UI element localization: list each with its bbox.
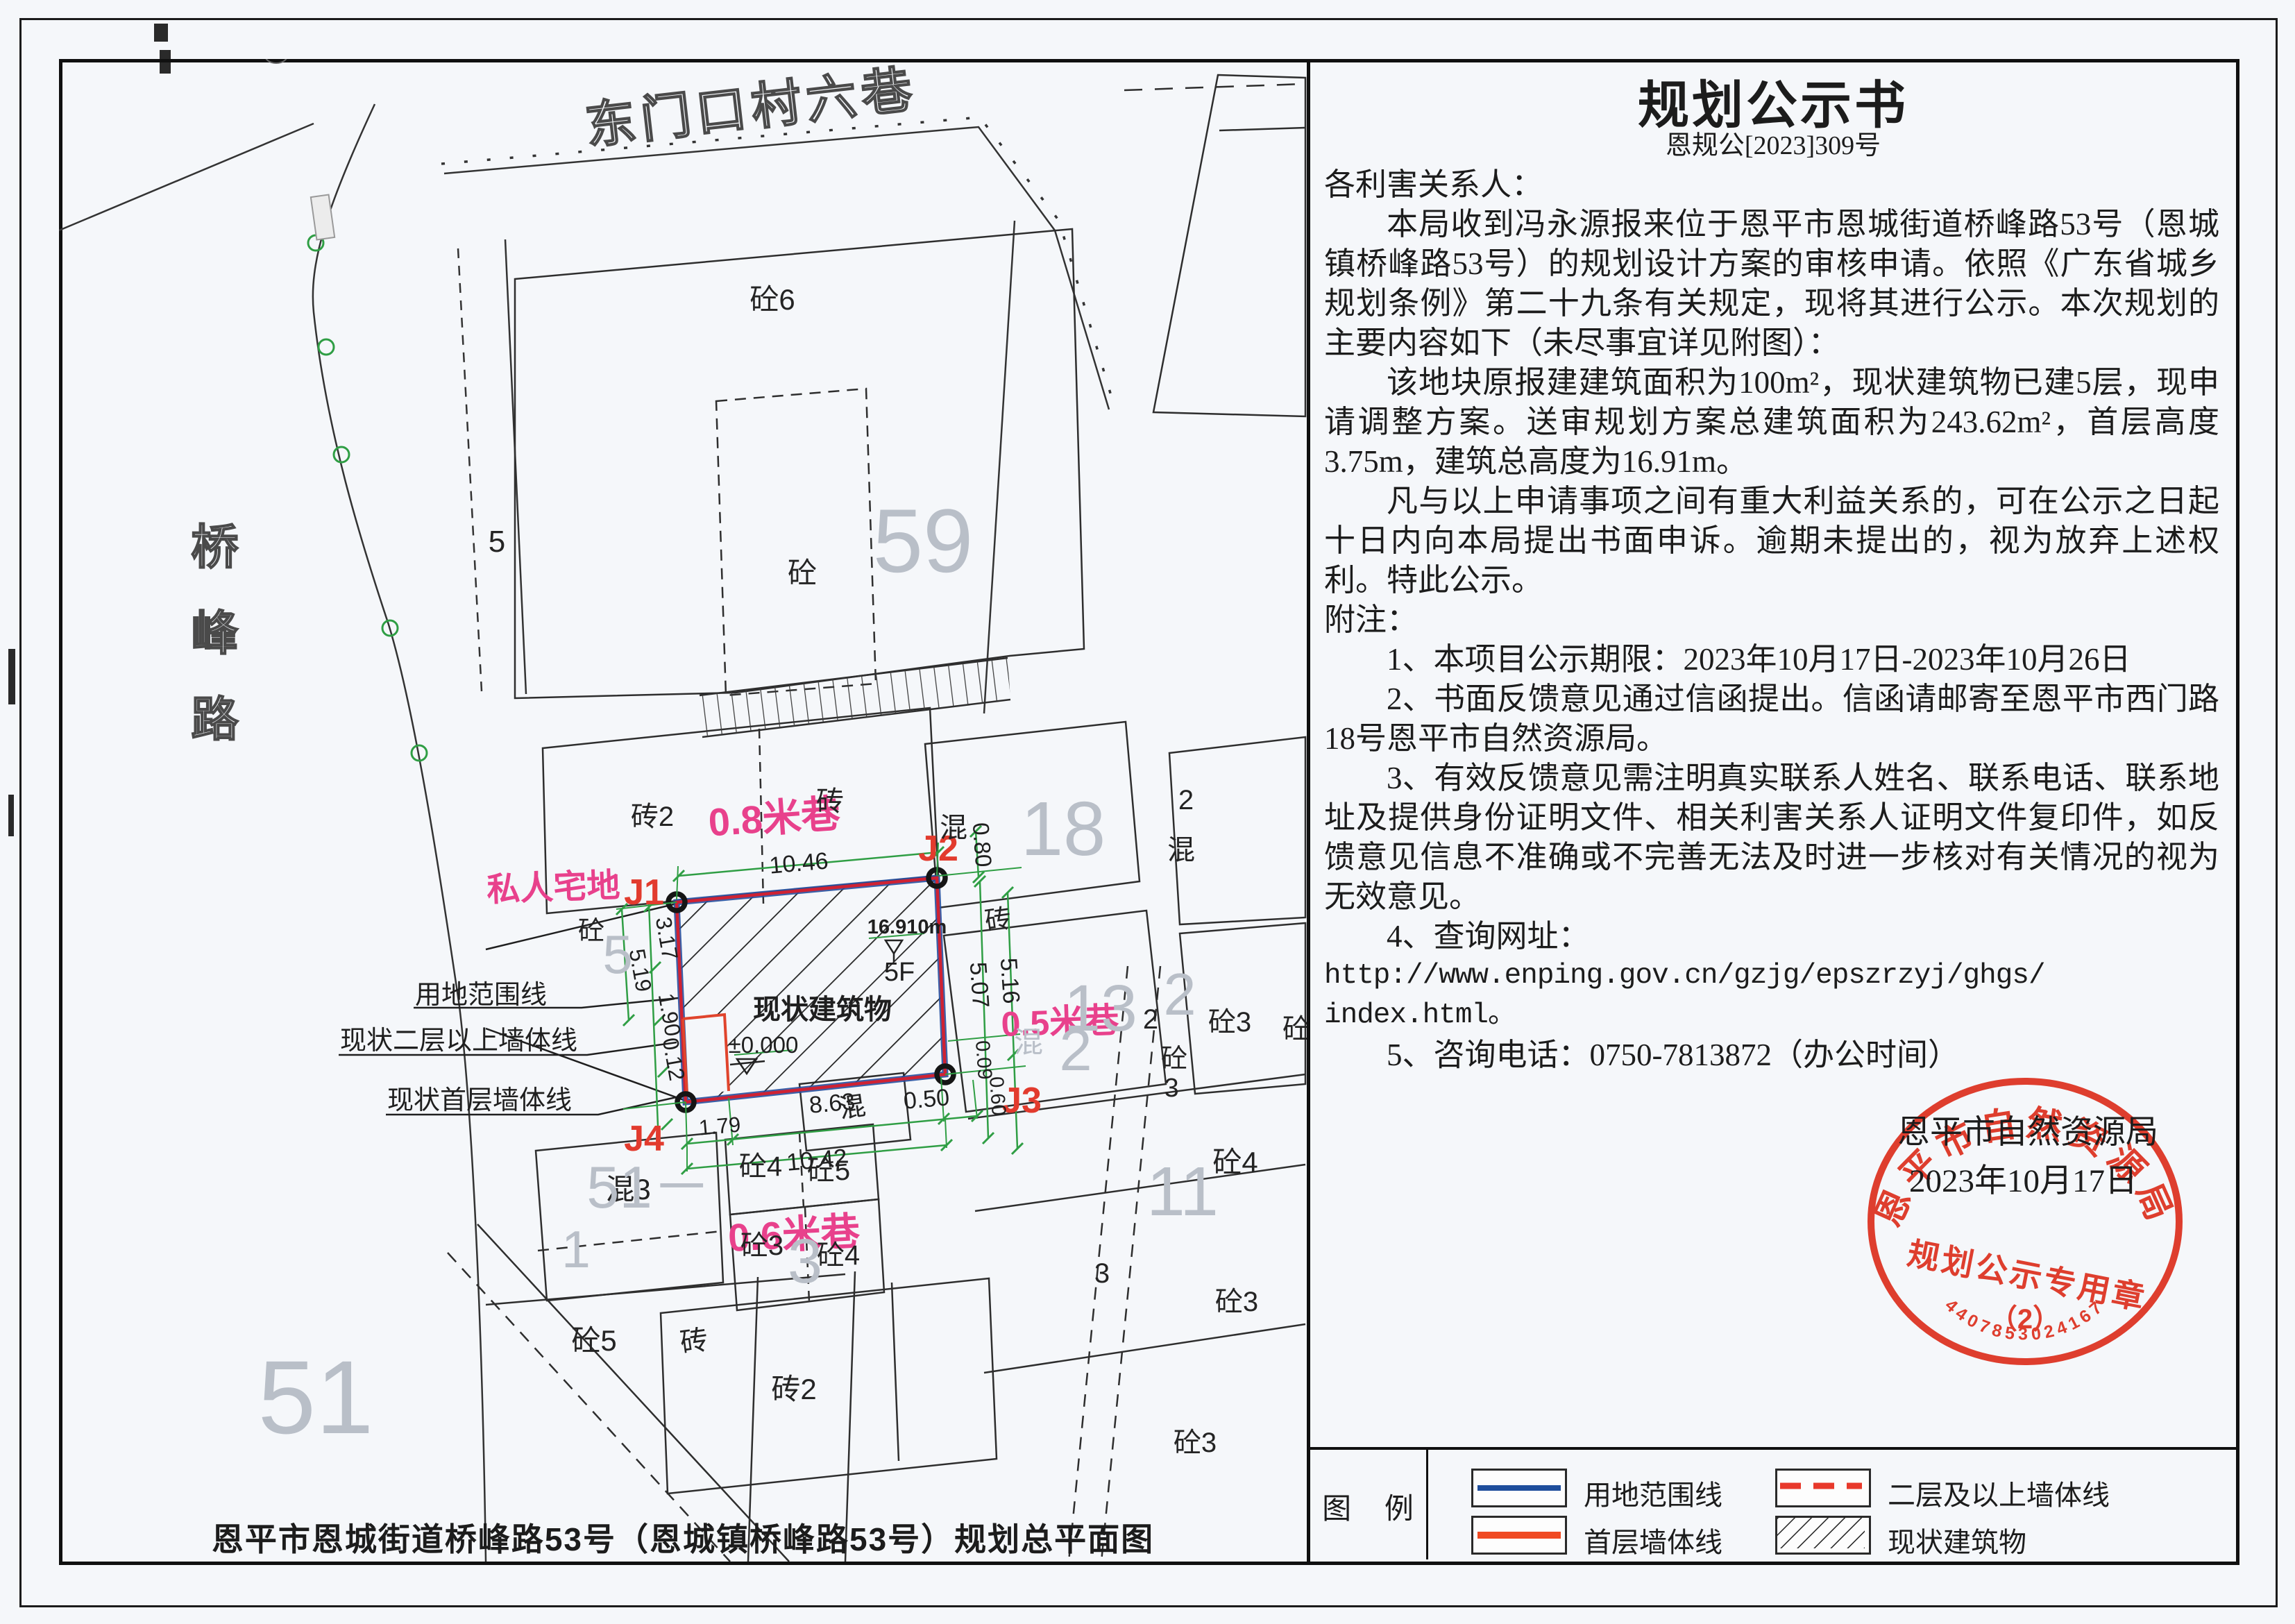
parcel-2b: 2 <box>1163 962 1196 1028</box>
bldg-tong-west: 砼 <box>578 917 604 946</box>
notice-note-2: 2、书面反馈意见通过信函提出。信函请邮寄至恩平市西门路18号恩平市自然资源局。 <box>1324 679 2219 759</box>
bldg-zhuan2-sw: 砖2 <box>771 1373 816 1405</box>
dim-0-80: 0.80 <box>968 822 997 868</box>
label-j1: J1 <box>624 872 664 913</box>
site-plan-drawing: 0.8米巷 0.6米巷 0.5米巷 私人宅地 J1 J2 J3 J4 10.46… <box>59 59 1307 1562</box>
road-corner-line <box>59 124 314 230</box>
dim-5-16: 5.16 <box>995 957 1025 1005</box>
plan-caption: 恩平市恩城街道桥峰路53号（恩城镇桥峰路53号）规划总平面图 <box>59 1514 1307 1560</box>
bldg-tong4-a: 砼4 <box>739 1151 782 1182</box>
utility-symbol <box>265 59 287 63</box>
parcel-11: 11 <box>1146 1153 1219 1230</box>
bldg-tong4-se: 砼4 <box>1212 1146 1257 1178</box>
trapezoid-inner <box>1219 128 1305 130</box>
dim-1-79: 1.79 <box>698 1112 742 1140</box>
east-road-edge <box>984 221 1015 713</box>
utility-box <box>311 194 334 239</box>
bldg-tong6: 砼6 <box>750 283 795 316</box>
notice-note-5: 5、咨询电话：0750-7813872（办公时间） <box>1324 1035 2219 1075</box>
bldg-tong-nw: 砼 <box>788 557 817 589</box>
bldg-zhuan-north: 砖 <box>816 786 844 817</box>
parcel-1: 1 <box>561 1220 591 1278</box>
stairs-hatch <box>700 658 1010 737</box>
lane-line-dashed <box>458 248 482 691</box>
bldg-tong5-sw: 砼5 <box>571 1324 616 1357</box>
parcel <box>668 870 954 1110</box>
dim-5-07: 5.07 <box>965 961 994 1009</box>
notice-note-4: 4、查询网址： <box>1324 917 2219 956</box>
parcel-2a: 2 <box>1059 1017 1092 1083</box>
signature-date: 2023年10月17日 <box>1659 1153 2137 1201</box>
first-floor-notch <box>683 1015 729 1095</box>
legend-top-border <box>1310 1447 2236 1450</box>
parcel-51: 51 <box>258 1339 374 1455</box>
notice-paragraph-2: 该地块原报建建筑面积为100m²，现状建筑物已建5层，现申请调整方案。送审规划方… <box>1324 363 2219 482</box>
notice-url-line1: http://www.enping.gov.cn/gzjg/epszrzyj/g… <box>1324 956 2219 996</box>
notice-body: 各利害关系人： 本局收到冯永源报来位于恩平市恩城街道桥峰路53号（恩城镇桥峰路5… <box>1324 165 2219 1075</box>
bldg-tong4-b: 砼4 <box>817 1240 860 1271</box>
parcel-18: 18 <box>1021 786 1106 872</box>
label-j4: J4 <box>624 1119 664 1159</box>
bldg-tong-edge: 砼 <box>1282 1014 1307 1044</box>
notice-paragraph-1: 本局收到冯永源报来位于恩平市恩城街道桥峰路53号（恩城镇桥峰路53号）的规划设计… <box>1324 205 2219 363</box>
scan-artifact <box>8 795 14 836</box>
notice-url-line2: index.html。 <box>1324 996 2219 1035</box>
bldg-hun18: 混 <box>940 813 967 843</box>
legend-swatch-first-wall <box>1471 1516 1567 1555</box>
scanned-planning-notice-page: 0.8米巷 0.6米巷 0.5米巷 私人宅地 J1 J2 J3 J4 10.46… <box>0 0 2295 1624</box>
dim-10-46: 10.46 <box>768 847 829 879</box>
bldg-tong3-a: 砼3 <box>740 1230 784 1261</box>
notice-note-1: 1、本项目公示期限：2023年10月17日-2023年10月26日 <box>1324 640 2219 679</box>
dim-0-09: 0.09 <box>971 1040 996 1081</box>
legend-cell-divider <box>1426 1450 1428 1559</box>
bldg-2-se: 2 <box>1143 1004 1158 1035</box>
bldg-hun-ne: 混 <box>1167 835 1195 865</box>
legend-hatch <box>1777 1518 1865 1548</box>
notice-note-3: 3、有效反馈意见需注明真实联系人姓名、联系电话、联系地址及提供身份证明文件、相关… <box>1324 759 2219 917</box>
signature-organization: 恩平市自然资源局 <box>1659 1105 2158 1153</box>
bldg-3-stack: 3 <box>1164 1074 1178 1103</box>
leader-upper-wall: 现状二层以上墙体线 <box>340 1026 577 1056</box>
legend-dashed-line <box>1777 1471 1865 1501</box>
map-labels: 0.8米巷 0.6米巷 0.5米巷 私人宅地 J1 J2 J3 J4 10.46… <box>258 283 1307 1458</box>
bldg-3-mid: 3 <box>1094 1258 1110 1289</box>
trapezoid-dashed <box>1124 84 1303 90</box>
panel-divider <box>1307 59 1310 1562</box>
parcel-5: 5 <box>602 924 632 985</box>
parcel-51b: 51－ <box>586 1155 711 1221</box>
notice-salutation: 各利害关系人： <box>1324 165 2219 205</box>
dim-0-50: 0.50 <box>902 1084 950 1115</box>
label-existing-building: 现状建筑物 <box>753 995 892 1025</box>
notice-paragraph-3: 凡与以上申请事项之间有重大利益关系的，可在公示之日起十日内向本局提出书面申诉。逾… <box>1324 482 2219 600</box>
label-ground-level: ±0.000 <box>729 1032 799 1058</box>
legend-swatch-upper-wall <box>1775 1469 1871 1507</box>
notice-doc-number: 恩规公[2023]309号 <box>1312 124 2235 162</box>
bldg-zhuan2-north: 砖2 <box>631 802 674 832</box>
bldg-tong3-se: 砼3 <box>1208 1007 1251 1038</box>
parcel-hun-faint: 混 <box>1014 1026 1043 1058</box>
parcel-59: 59 <box>873 490 974 591</box>
label-roof-level: 16.910m <box>867 916 947 938</box>
scan-artifact <box>8 649 15 704</box>
parcel-3: 3 <box>788 1227 822 1296</box>
bldg-tong3-bottom: 砼3 <box>1174 1428 1217 1458</box>
bldg-zhuan-sw: 砖 <box>678 1325 710 1359</box>
bldg-2-ne: 2 <box>1178 785 1194 815</box>
legend-title: 图 例 <box>1322 1485 1426 1528</box>
south-block-divider <box>892 1283 899 1461</box>
leader-site-boundary: 用地范围线 <box>415 981 547 1010</box>
road-name-qiaofenglu: 桥峰路 <box>176 522 245 780</box>
bldg-tong5-a: 砼5 <box>807 1156 850 1186</box>
dim-0-60: 0.60 <box>985 1076 1010 1117</box>
bldg-tong-stack: 砼 <box>1161 1044 1187 1074</box>
legend-swatch-existing <box>1775 1516 1871 1555</box>
legend-swatch-boundary <box>1471 1469 1567 1507</box>
label-floors-5f: 5F <box>884 958 915 987</box>
top-road-edge <box>444 127 1109 409</box>
label-private-plot: 私人宅地 <box>486 868 621 909</box>
legend-label-existing: 现状建筑物 <box>1888 1520 2026 1560</box>
leader-first-wall: 现状首层墙体线 <box>387 1086 572 1115</box>
ne-block <box>1169 737 1305 924</box>
ne-trapezoid <box>1153 75 1305 416</box>
bldg-hun-mid: 混 <box>838 1092 867 1124</box>
nw-block <box>515 229 1084 698</box>
bldg-tong3-se2: 砼3 <box>1215 1287 1258 1317</box>
notice-notes-label: 附注： <box>1324 600 2219 640</box>
lot-number-5: 5 <box>489 525 505 559</box>
bldg-zhuan-east: 砖 <box>983 904 1013 937</box>
legend-label-first-wall: 首层墙体线 <box>1584 1520 1722 1560</box>
legend-label-boundary: 用地范围线 <box>1584 1473 1722 1513</box>
legend-label-upper-wall: 二层及以上墙体线 <box>1888 1473 2110 1513</box>
legend-line-blue <box>1477 1485 1561 1491</box>
legend-line-red <box>1477 1532 1561 1539</box>
south-brick-block <box>661 1278 997 1494</box>
street-trees <box>308 235 427 761</box>
nw-inner-dashed <box>716 389 876 695</box>
